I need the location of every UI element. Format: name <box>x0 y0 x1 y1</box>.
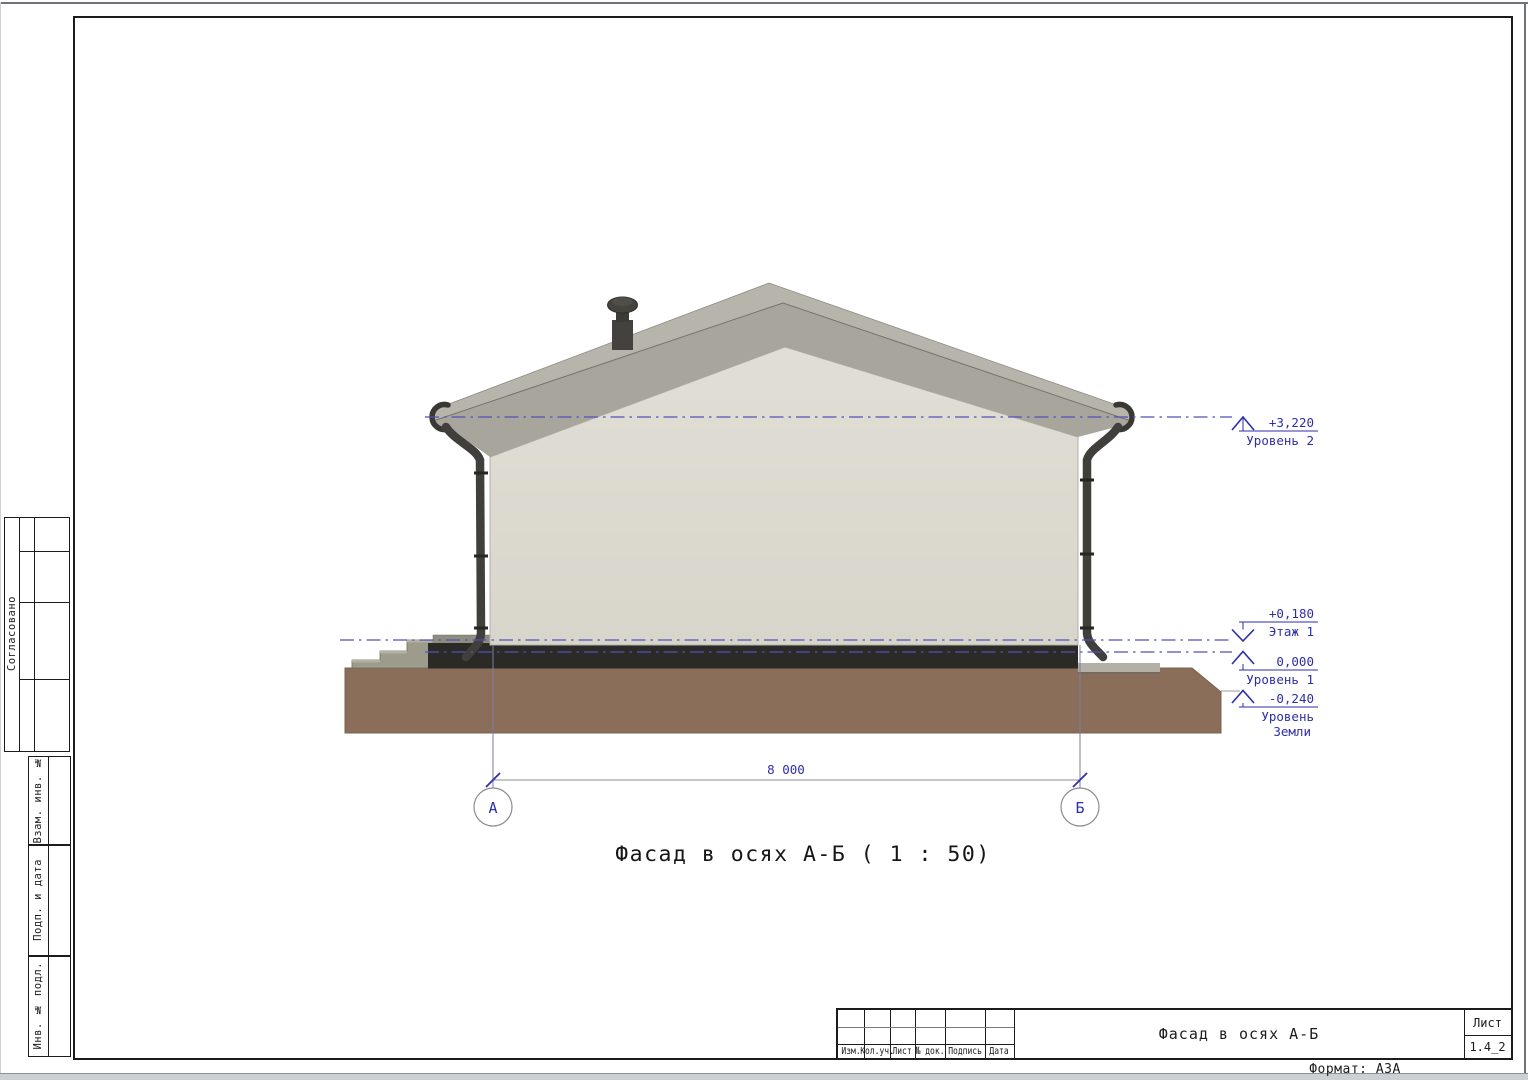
sheet-left-edge <box>0 2 1 1074</box>
stamp-field-label: Инв. № подл. <box>32 962 44 1050</box>
titleblock-col-ndok: № док. <box>915 1045 945 1058</box>
stamp-approved-label: Согласовано <box>6 596 18 671</box>
stamp-row-line <box>19 551 70 552</box>
drawing-frame <box>73 16 1513 1060</box>
titleblock-col-list: Лист <box>890 1045 915 1058</box>
titleblock-col-data: Дата <box>985 1045 1014 1058</box>
titleblock-sheet-number: 1.4_2 <box>1464 1035 1511 1058</box>
titleblock-col-podpis: Подпись <box>945 1045 985 1058</box>
titleblock-sheet-label: Лист <box>1464 1010 1511 1035</box>
sheet-top-edge <box>0 2 1528 4</box>
stamp-divider <box>48 957 49 1056</box>
stamp-divider <box>34 518 35 751</box>
stamp-row-line <box>19 679 70 680</box>
stamp-field-label-cell: Инв. № подл. <box>29 957 48 1055</box>
stamp-field-label-cell: Подп. и дата <box>29 846 48 954</box>
titleblock-row-line <box>838 1027 1014 1028</box>
stamp-field-label: Взам. инв. № <box>32 756 44 844</box>
titleblock-col-koluch: Кол.уч. <box>864 1045 890 1058</box>
format-note: Формат: А3А <box>1255 1062 1455 1077</box>
stamp-field-vzam: Взам. инв. № <box>28 756 71 845</box>
stamp-divider <box>19 518 20 751</box>
title-block: Изм. Кол.уч. Лист № док. Подпись Дата Фа… <box>836 1008 1513 1060</box>
stamp-divider <box>48 757 49 844</box>
stamp-divider <box>48 846 49 955</box>
sheet-right-edge <box>1524 2 1526 1074</box>
titleblock-doc-title: Фасад в осях А-Б <box>1014 1010 1464 1058</box>
stamp-field-inv: Инв. № подл. <box>28 956 71 1057</box>
sheet: +3,220 Уровень 2 +0,180 Этаж 1 0,000 Уро… <box>0 0 1528 1080</box>
stamp-approved-label-cell: Согласовано <box>5 518 19 750</box>
stamp-approved-block: Согласовано <box>4 517 70 752</box>
stamp-field-label: Подп. и дата <box>32 859 44 941</box>
stamp-field-label-cell: Взам. инв. № <box>29 757 48 843</box>
stamp-field-podp: Подп. и дата <box>28 845 71 956</box>
stamp-row-line <box>19 602 70 603</box>
